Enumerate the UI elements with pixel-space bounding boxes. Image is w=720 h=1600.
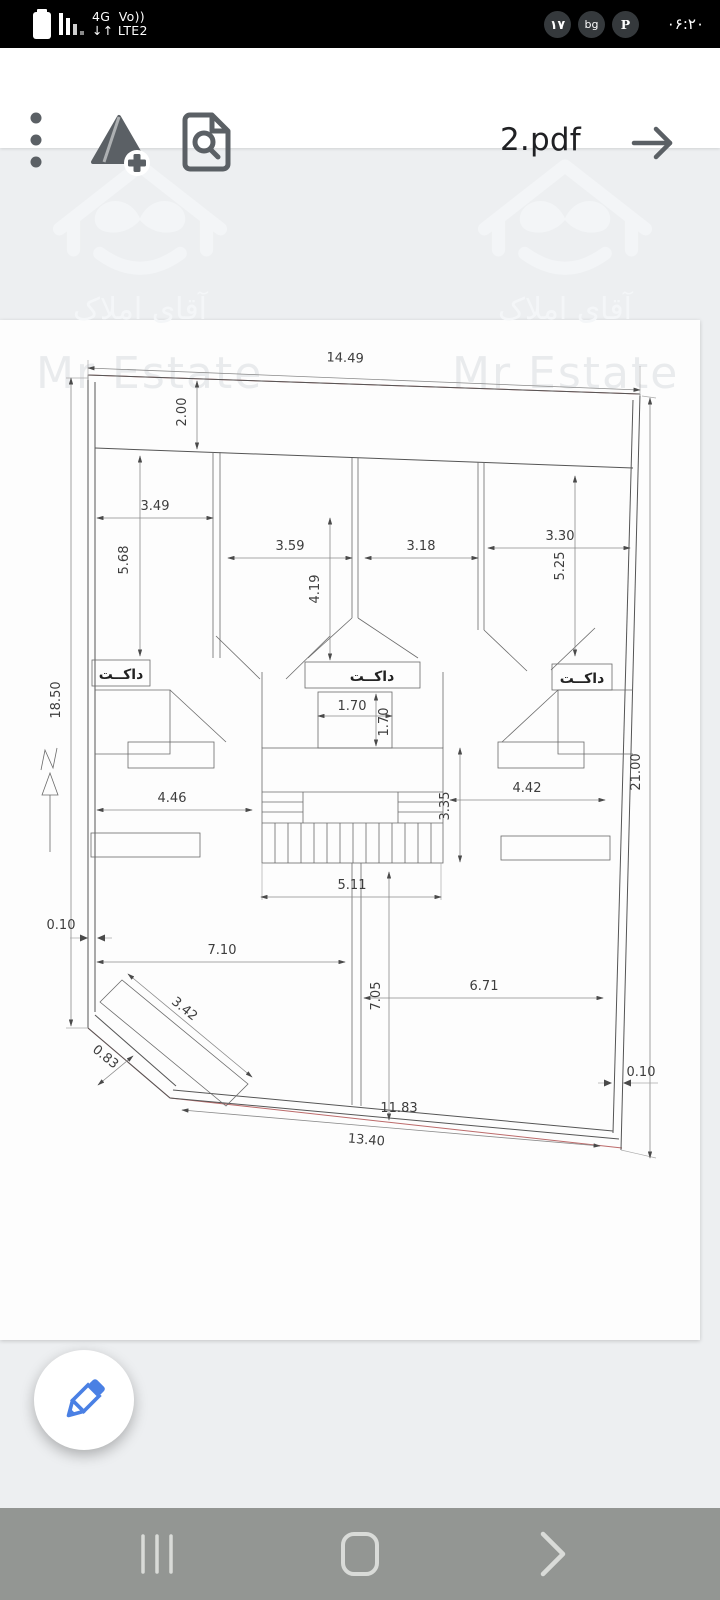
network-status-text: 4G Vo)) ↓↑ LTE2 — [92, 10, 148, 38]
dimension-label: 0.83 — [89, 1042, 121, 1072]
staircase — [262, 748, 443, 863]
dimension-label: 21.00 — [629, 753, 644, 790]
dimension-label: 0.10 — [627, 1065, 656, 1080]
clock: ۰۶:۲۰ — [652, 15, 704, 33]
dimension-label: 1.70 — [338, 699, 367, 714]
dimension-label: 0.10 — [47, 918, 76, 933]
floor-plan-drawing: داکــت داکــت داکــت 14.492.0018.5021.00… — [0, 320, 700, 1340]
dimension-lines — [70, 368, 658, 1158]
recents-icon — [137, 1534, 177, 1574]
battery-icon — [32, 8, 52, 40]
dimension-label: 14.49 — [326, 350, 364, 366]
notification-count-badge: ۱۷ — [544, 11, 571, 38]
android-navigation-bar — [0, 1508, 720, 1600]
dimension-labels: 14.492.0018.5021.003.495.683.594.193.183… — [47, 350, 656, 1149]
edit-fab-button[interactable] — [34, 1350, 134, 1450]
drive-add-icon[interactable] — [88, 112, 152, 176]
dimension-label: 11.83 — [380, 1101, 417, 1116]
overflow-menu-icon[interactable] — [30, 111, 42, 179]
watermark-right: آقای املاک — [445, 148, 685, 327]
dimension-label: 3.42 — [168, 994, 200, 1024]
home-icon — [341, 1532, 379, 1576]
dimension-label: 4.42 — [513, 781, 542, 796]
dimension-label: 5.11 — [338, 878, 367, 893]
recents-button[interactable] — [117, 1508, 197, 1600]
pdf-content-area[interactable]: آقای املاک آقای املاک Mr Estate Mr Estat… — [0, 148, 720, 1508]
home-button[interactable] — [320, 1508, 400, 1600]
north-arrow-icon — [41, 748, 58, 852]
dimension-label: 5.25 — [553, 552, 568, 581]
back-chevron-icon — [539, 1530, 567, 1578]
dimension-label: 3.49 — [141, 499, 170, 514]
dimension-label: 7.10 — [208, 943, 237, 958]
dimension-label: 3.18 — [407, 539, 436, 554]
document-title: 2.pdf — [500, 122, 581, 158]
status-right-group: ۱۷ bg P ۰۶:۲۰ — [544, 11, 704, 38]
dimension-label: 6.71 — [470, 979, 499, 994]
dimension-label: 5.68 — [117, 546, 132, 575]
bg-app-notification-icon: bg — [578, 11, 605, 38]
dimension-label: 3.59 — [276, 539, 305, 554]
duct-label: داکــت — [350, 669, 395, 685]
edit-pencil-icon — [59, 1375, 109, 1425]
dimension-label: 7.05 — [369, 982, 384, 1011]
status-bar: 4G Vo)) ↓↑ LTE2 ۱۷ bg P ۰۶:۲۰ — [0, 0, 720, 48]
dimension-label: 1.70 — [377, 708, 392, 737]
dimension-label: 13.40 — [347, 1131, 385, 1149]
dimension-label: 4.46 — [158, 791, 187, 806]
duct-label: داکــت — [99, 667, 144, 683]
status-left-group: 4G Vo)) ↓↑ LTE2 — [32, 8, 148, 40]
find-in-document-icon[interactable] — [182, 112, 234, 172]
dimension-label: 4.19 — [308, 575, 323, 604]
dimension-label: 3.35 — [438, 792, 453, 821]
outer-walls — [88, 375, 640, 1150]
mr-estate-logo-icon — [460, 148, 670, 280]
dimension-label: 2.00 — [175, 398, 190, 427]
forward-arrow-icon[interactable] — [630, 122, 676, 164]
duct-labels: داکــت داکــت داکــت — [99, 667, 605, 687]
pdf-viewer-toolbar: 2.pdf — [0, 48, 720, 148]
dimension-label: 18.50 — [49, 681, 64, 718]
pinterest-notification-icon: P — [612, 11, 639, 38]
property-boundary-line — [88, 375, 640, 1148]
duct-label: داکــت — [560, 671, 605, 687]
back-button[interactable] — [513, 1508, 593, 1600]
signal-bars-icon — [59, 9, 85, 39]
dimension-label: 3.30 — [546, 529, 575, 544]
pdf-page[interactable]: Mr Estate Mr Estate — [0, 320, 700, 1340]
